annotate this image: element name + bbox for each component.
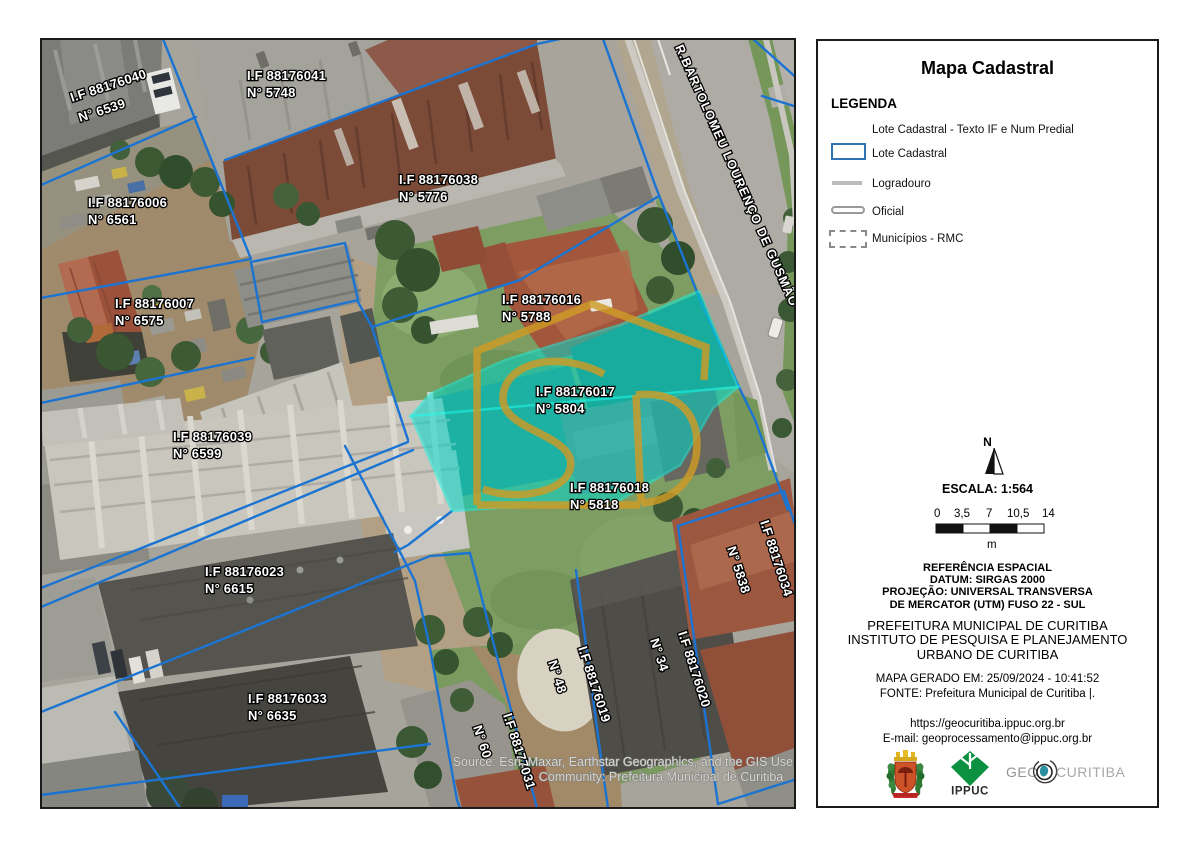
svg-text:IPPUC: IPPUC (951, 786, 989, 796)
svg-text:N° 5818: N° 5818 (570, 497, 619, 512)
svg-text:I.F 88176033: I.F 88176033 (248, 691, 327, 706)
svg-text:10,5: 10,5 (1007, 508, 1029, 520)
svg-text:I.F 88176018: I.F 88176018 (570, 480, 649, 495)
svg-text:m: m (987, 539, 997, 551)
svg-text:CURITIBA: CURITIBA (1056, 764, 1126, 780)
svg-text:I.F 88176006: I.F 88176006 (88, 195, 167, 210)
svg-text:N° 6599: N° 6599 (173, 446, 222, 461)
svg-text:N° 6561: N° 6561 (88, 212, 137, 227)
svg-text:Community: Prefeitura Municipa: Community: Prefeitura Municipal de Curit… (539, 770, 784, 784)
svg-text:I.F 88176041: I.F 88176041 (247, 68, 326, 83)
svg-text:N° 5776: N° 5776 (399, 189, 448, 204)
svg-text:0: 0 (934, 508, 940, 520)
svg-text:N° 5748: N° 5748 (247, 85, 296, 100)
svg-text:I.F 88176039: I.F 88176039 (173, 429, 252, 444)
svg-text:N° 5804: N° 5804 (536, 401, 585, 416)
svg-text:I.F 88176023: I.F 88176023 (205, 564, 284, 579)
svg-text:N° 6615: N° 6615 (205, 581, 254, 596)
svg-text:Source: Esri, Maxar, Earthstar: Source: Esri, Maxar, Earthstar Geographi… (453, 755, 798, 769)
svg-text:14: 14 (1042, 508, 1055, 520)
svg-text:N° 5788: N° 5788 (502, 309, 551, 324)
svg-text:I.F 88176038: I.F 88176038 (399, 172, 478, 187)
svg-text:I.F 88176016: I.F 88176016 (502, 292, 581, 307)
svg-text:I.F 88176017: I.F 88176017 (536, 384, 615, 399)
svg-text:N° 6575: N° 6575 (115, 313, 164, 328)
svg-text:7: 7 (986, 508, 992, 520)
svg-text:I.F 88176007: I.F 88176007 (115, 296, 194, 311)
svg-text:3,5: 3,5 (954, 508, 970, 520)
svg-text:N° 6635: N° 6635 (248, 708, 297, 723)
